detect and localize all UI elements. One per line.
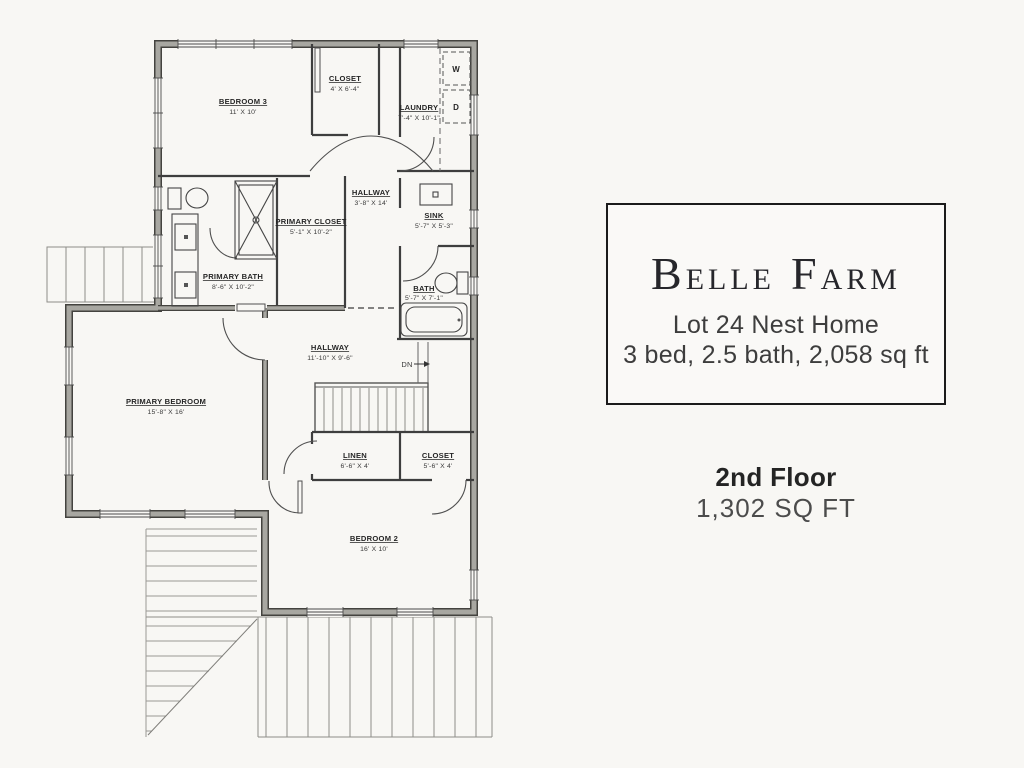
room-label-laundry: LAUNDRY 7'-4" X 10'-1" [398,103,440,122]
room-label-hallway-lower: HALLWAY 11'-10" X 9'-6" [307,343,353,362]
floor-plan-sheet: W D DN BEDROOM 3 11' X 10' CLOSET 4' X 6… [0,0,1024,768]
svg-text:5'-7" X 5'-3": 5'-7" X 5'-3" [415,223,453,230]
room-label-bedroom-3: BEDROOM 3 11' X 10' [219,97,267,116]
svg-text:HALLWAY: HALLWAY [352,188,390,197]
room-label-primary-bedroom: PRIMARY BEDROOM 15'-8" X 16' [126,397,206,416]
room-label-closet-2: CLOSET 5'-6" X 4' [422,451,454,470]
room-label-closet-top: CLOSET 4' X 6'-4" [329,74,361,93]
svg-text:11'-10" X 9'-6": 11'-10" X 9'-6" [307,355,353,362]
room-label-primary-closet: PRIMARY CLOSET 5'-1" X 10'-2" [275,217,346,236]
bathtub [401,303,467,336]
svg-text:BEDROOM 2: BEDROOM 2 [350,534,398,543]
svg-text:CLOSET: CLOSET [422,451,454,460]
room-label-sink: SINK 5'-7" X 5'-3" [415,211,453,230]
washer-dryer: W D [440,48,470,171]
room-label-bedroom-2: BEDROOM 2 16' X 10' [350,534,398,553]
brand-word2-rest: ARM [821,263,901,296]
dn-marker: DN [401,360,430,369]
svg-text:PRIMARY BEDROOM: PRIMARY BEDROOM [126,397,206,406]
brand-word2-initial: F [791,248,821,299]
svg-text:5'-6" X 4': 5'-6" X 4' [424,463,453,470]
svg-text:DN: DN [401,360,412,369]
svg-text:11' X 10': 11' X 10' [229,109,256,116]
room-label-hallway-upper: HALLWAY 3'-8" X 14' [352,188,390,207]
svg-text:CLOSET: CLOSET [329,74,361,83]
floor-area: 1,302 SQ FT [606,493,946,524]
room-label-primary-bath: PRIMARY BATH 8'-6" X 10'-2" [203,272,263,291]
svg-text:5'-7" X 7'-1": 5'-7" X 7'-1" [405,295,443,302]
svg-text:SINK: SINK [424,211,443,220]
svg-text:LINEN: LINEN [343,451,367,460]
svg-text:16' X 10': 16' X 10' [360,546,388,553]
lot-title: Lot 24 Nest Home [673,311,879,340]
dryer-label: D [453,103,459,112]
washer-label: W [452,65,460,74]
svg-text:PRIMARY CLOSET: PRIMARY CLOSET [275,217,346,226]
toilet-bath [435,272,468,294]
svg-text:5'-1" X 10'-2": 5'-1" X 10'-2" [290,229,332,236]
shower [235,181,277,259]
svg-text:PRIMARY BATH: PRIMARY BATH [203,272,263,281]
rear-deck [146,617,492,737]
title-block: BELLEFARM Lot 24 Nest Home 3 bed, 2.5 ba… [606,203,946,405]
toilet-primary [168,188,208,209]
brand-word-1: BELLE [651,276,775,293]
svg-text:15'-8" X 16': 15'-8" X 16' [148,409,185,416]
vanity-sinks [172,214,198,306]
side-deck [47,247,158,302]
svg-text:3'-8" X 14': 3'-8" X 14' [355,200,388,207]
svg-text:LAUNDRY: LAUNDRY [400,103,439,112]
brand-word1-rest: ELLE [686,263,775,296]
svg-text:4' X 6'-4": 4' X 6'-4" [331,86,360,93]
svg-text:6'-6" X 4': 6'-6" X 4' [341,463,370,470]
svg-text:BEDROOM 3: BEDROOM 3 [219,97,267,106]
sink-room-counter [420,184,452,205]
floor-name: 2nd Floor [606,462,946,493]
roof-hatch [146,529,257,737]
brand-logo: BELLEFARM [651,251,901,297]
room-label-linen: LINEN 6'-6" X 4' [341,451,370,470]
room-label-bath: BATH 5'-7" X 7'-1" [405,284,443,302]
specs-line: 3 bed, 2.5 bath, 2,058 sq ft [623,340,929,370]
svg-text:HALLWAY: HALLWAY [311,343,349,352]
svg-text:7'-4" X 10'-1": 7'-4" X 10'-1" [398,115,440,122]
exterior-walls [69,44,474,612]
svg-text:BATH: BATH [413,284,435,293]
brand-word1-initial: B [651,248,686,299]
floor-label: 2nd Floor 1,302 SQ FT [606,462,946,524]
brand-word-2: FARM [791,276,901,293]
windows [64,39,479,617]
svg-text:8'-6" X 10'-2": 8'-6" X 10'-2" [212,284,254,291]
